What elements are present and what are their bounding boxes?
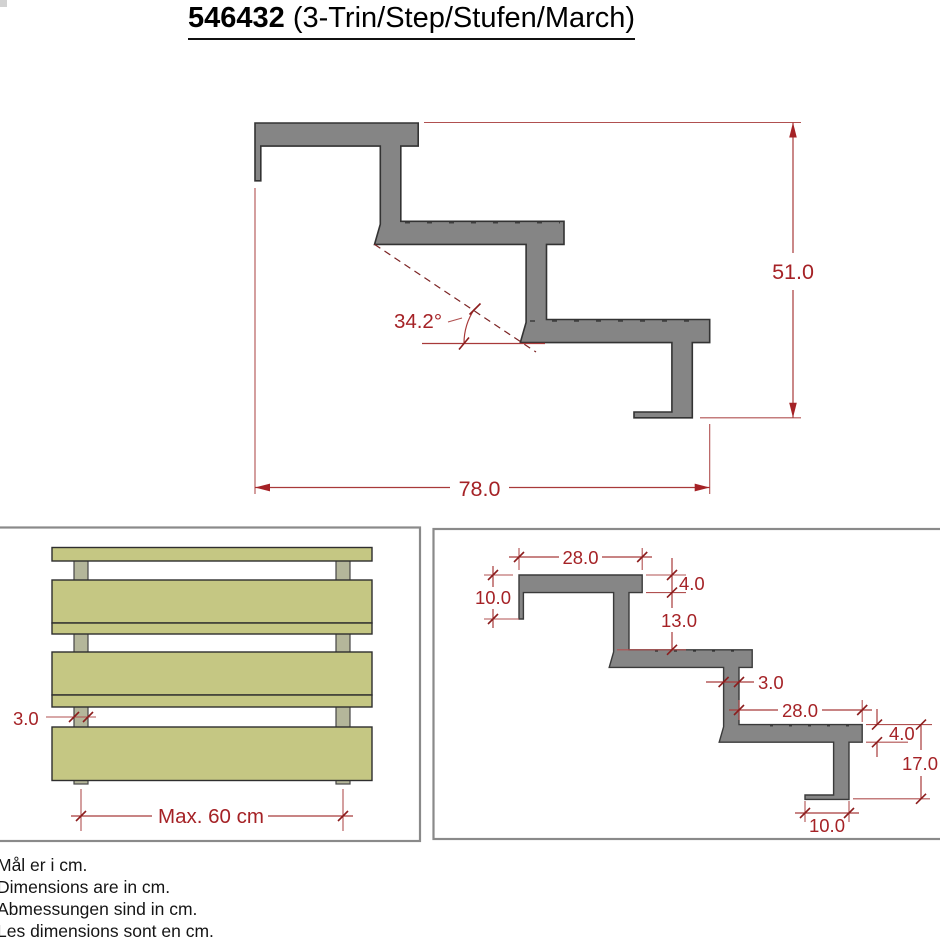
wood-plank-bottom xyxy=(52,727,372,781)
dim-total-rise: 51.0 xyxy=(424,123,814,418)
technical-drawing-page: 546432 (3-Trin/Step/Stufen/March) 78.0 xyxy=(0,0,940,940)
dim-tread-length-top: 28.0 xyxy=(509,547,652,570)
footer-notes: Mål er i cm. Dimensions are in cm. Abmes… xyxy=(0,854,214,940)
front-view-panel: 3.0 Max. 60 cm xyxy=(0,528,420,842)
wood-plank-1-strip xyxy=(52,623,372,634)
dim-front-thickness-value: 3.0 xyxy=(13,708,39,729)
note-german: Abmessungen sind in cm. xyxy=(0,898,214,920)
dim-plate-thickness-value: 3.0 xyxy=(758,672,784,693)
note-english: Dimensions are in cm. xyxy=(0,876,214,898)
wood-plank-2 xyxy=(52,652,372,695)
wood-plank-top-edge xyxy=(52,548,372,562)
stair-stringer-drawing: 78.0 51.0 34.2° xyxy=(0,0,940,940)
dim-total-rise-value: 51.0 xyxy=(772,260,814,284)
dim-tread-thickness-top: 4.0 xyxy=(646,558,705,650)
dim-angle-value: 34.2° xyxy=(394,310,442,333)
note-french: Les dimensions sont en cm. xyxy=(0,920,214,940)
dim-hanger-drop-value: 10.0 xyxy=(475,587,511,608)
dim-riser-clear-value: 13.0 xyxy=(661,610,697,631)
stringer-profile-main xyxy=(255,123,710,418)
dim-max-spacing: Max. 60 cm xyxy=(71,789,353,831)
dim-foot-length: 10.0 xyxy=(795,801,859,836)
dim-tread-length-top-value: 28.0 xyxy=(562,547,598,568)
dim-plate-thickness: 3.0 xyxy=(706,672,784,693)
dim-bottom-rise-value: 17.0 xyxy=(902,753,938,774)
dim-tread-length-bottom: 28.0 xyxy=(729,700,872,722)
dim-total-run-value: 78.0 xyxy=(459,477,501,501)
dim-foot-length-value: 10.0 xyxy=(809,815,845,836)
detail-view-panel: 28.0 10.0 4.0 xyxy=(434,529,940,839)
dim-hanger-drop: 10.0 xyxy=(475,566,519,628)
note-danish: Mål er i cm. xyxy=(0,854,214,876)
dim-tread-thickness-bottom: 4.0 xyxy=(866,709,932,757)
main-side-view: 78.0 51.0 34.2° xyxy=(255,123,814,502)
stringer-profile-detail xyxy=(519,575,862,799)
dim-slope-angle: 34.2° xyxy=(375,244,546,352)
dim-max-spacing-value: Max. 60 cm xyxy=(158,805,264,828)
dim-tread-thickness-top-value: 4.0 xyxy=(679,573,705,594)
wood-plank-2-strip xyxy=(52,695,372,707)
wood-plank-1 xyxy=(52,580,372,623)
dim-tread-thickness-bottom-value: 4.0 xyxy=(889,723,915,744)
dim-tread-length-bottom-value: 28.0 xyxy=(782,700,818,721)
